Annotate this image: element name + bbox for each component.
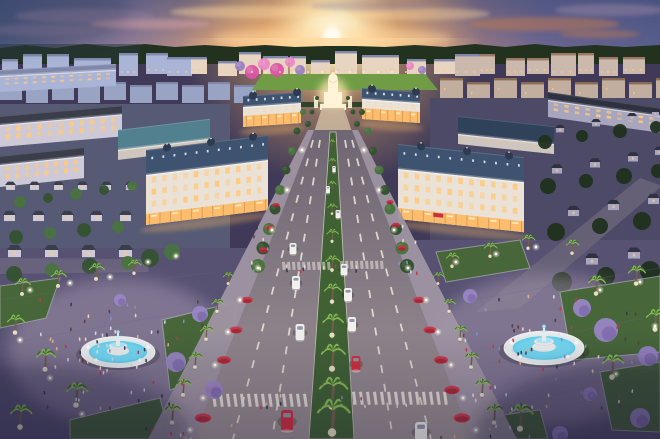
shophouse-block: [392, 139, 531, 243]
pedestrian: [286, 269, 288, 273]
pedestrian: [355, 265, 357, 269]
pedestrian: [618, 324, 620, 328]
pedestrian: [300, 270, 302, 274]
pedestrian: [355, 269, 357, 273]
pedestrian: [110, 326, 112, 330]
pedestrian: [560, 307, 562, 311]
pedestrian: [498, 298, 500, 302]
aerial-render-image: [0, 0, 660, 439]
pedestrian: [485, 308, 487, 312]
pedestrian: [126, 303, 128, 307]
pedestrian: [553, 295, 555, 299]
pedestrian: [304, 265, 306, 269]
pedestrian: [416, 271, 418, 275]
pedestrian: [183, 319, 185, 323]
pedestrian: [517, 325, 519, 329]
pedestrian: [527, 295, 529, 299]
pedestrian: [286, 264, 288, 268]
pedestrian: [571, 326, 573, 330]
pedestrian: [197, 300, 199, 304]
pedestrian: [135, 314, 137, 318]
pedestrian: [39, 298, 41, 302]
shophouse-block: [359, 83, 423, 133]
pedestrian: [253, 269, 255, 273]
pedestrian: [512, 324, 514, 328]
pedestrian: [251, 261, 253, 265]
pedestrian: [164, 320, 166, 324]
pedestrian: [253, 235, 255, 239]
pedestrian: [88, 314, 90, 318]
aerial-rendering: [0, 0, 660, 439]
pedestrian: [110, 317, 112, 321]
